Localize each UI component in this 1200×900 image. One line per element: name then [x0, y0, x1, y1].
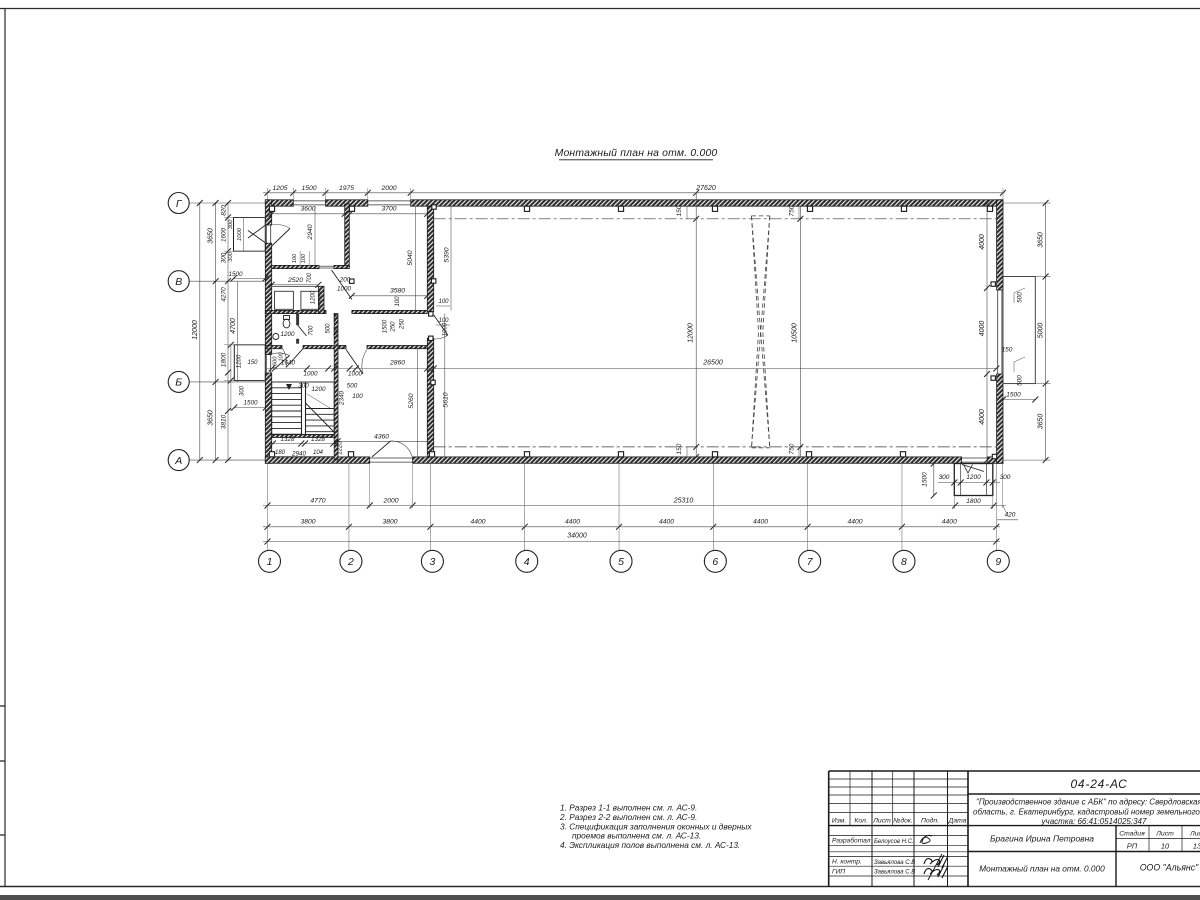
svg-text:4400: 4400 — [753, 518, 768, 525]
svg-text:300: 300 — [334, 326, 340, 336]
svg-text:1328: 1328 — [280, 436, 295, 443]
svg-text:100: 100 — [334, 312, 340, 322]
svg-text:4700: 4700 — [230, 318, 237, 334]
svg-text:300: 300 — [240, 385, 246, 396]
svg-text:Б: Б — [175, 377, 182, 389]
svg-text:1: 1 — [267, 556, 273, 568]
svg-text:4000: 4000 — [979, 321, 986, 337]
svg-text:Кол.: Кол. — [854, 818, 867, 825]
svg-text:04-24-АС: 04-24-АС — [1070, 777, 1127, 791]
svg-text:Разработал: Разработал — [832, 837, 871, 845]
svg-text:Завьялова С.В: Завьялова С.В — [874, 870, 915, 876]
svg-text:150: 150 — [676, 443, 683, 454]
svg-text:12000: 12000 — [192, 320, 199, 340]
svg-text:Дата: Дата — [948, 818, 967, 825]
svg-text:13: 13 — [1193, 841, 1200, 850]
svg-text:5000: 5000 — [1038, 323, 1045, 339]
svg-text:10500: 10500 — [792, 323, 799, 343]
svg-text:150: 150 — [247, 360, 258, 366]
svg-text:300: 300 — [228, 219, 234, 229]
svg-text:4400: 4400 — [847, 518, 862, 525]
svg-text:2940: 2940 — [307, 224, 314, 240]
svg-text:200: 200 — [339, 277, 351, 284]
svg-text:В: В — [175, 276, 182, 288]
svg-text:Брагина Ирина Петровна: Брагина Ирина Петровна — [990, 834, 1094, 844]
svg-text:3700: 3700 — [381, 206, 396, 213]
svg-text:2000: 2000 — [382, 498, 398, 505]
svg-text:1220: 1220 — [338, 441, 344, 455]
svg-text:1500: 1500 — [301, 185, 316, 192]
svg-text:25310: 25310 — [673, 498, 694, 505]
svg-text:750: 750 — [789, 443, 796, 454]
svg-text:2340: 2340 — [339, 391, 346, 407]
svg-text:250: 250 — [400, 318, 406, 330]
svg-text:1328: 1328 — [311, 436, 326, 443]
svg-text:26500: 26500 — [702, 360, 723, 367]
svg-text:1205: 1205 — [272, 185, 287, 192]
svg-text:500: 500 — [1017, 375, 1024, 386]
svg-text:750: 750 — [789, 205, 796, 216]
svg-text:700: 700 — [309, 325, 315, 336]
svg-text:3650: 3650 — [208, 410, 215, 426]
svg-text:4360: 4360 — [374, 433, 389, 440]
svg-text:250: 250 — [391, 321, 397, 333]
svg-text:100: 100 — [352, 393, 363, 400]
svg-text:1500: 1500 — [383, 319, 389, 333]
svg-text:область, г. Екатеринбург, када: область, г. Екатеринбург, кадастровый но… — [973, 808, 1200, 817]
svg-text:5390: 5390 — [444, 247, 451, 262]
svg-text:Лист: Лист — [1155, 830, 1174, 837]
svg-text:1000: 1000 — [337, 286, 352, 293]
svg-text:4. Экспликация полов выполн: 4. Экспликация полов выполнена см. л. АС… — [560, 840, 740, 850]
svg-text:150: 150 — [1002, 347, 1013, 354]
svg-text:Монтажный план на отм. 0.000: Монтажный план на отм. 0.000 — [979, 864, 1105, 874]
svg-text:Лис: Лис — [1189, 830, 1200, 837]
svg-text:100: 100 — [438, 318, 449, 324]
svg-text:300: 300 — [1000, 474, 1011, 481]
svg-text:3580: 3580 — [390, 287, 405, 294]
svg-text:1200: 1200 — [966, 474, 981, 481]
svg-text:2860: 2860 — [389, 359, 405, 366]
svg-text:300: 300 — [228, 251, 234, 261]
svg-text:1975: 1975 — [339, 185, 354, 192]
svg-text:2: 2 — [347, 556, 354, 568]
svg-text:Лист: Лист — [872, 818, 891, 825]
svg-text:9: 9 — [995, 556, 1001, 568]
svg-text:10: 10 — [1161, 841, 1170, 850]
svg-text:12000: 12000 — [688, 323, 695, 343]
svg-text:300: 300 — [298, 383, 309, 390]
svg-text:700: 700 — [307, 272, 313, 283]
svg-text:Изм.: Изм. — [832, 818, 847, 825]
svg-text:РП: РП — [1127, 841, 1138, 850]
svg-text:3: 3 — [429, 556, 435, 568]
svg-text:100: 100 — [438, 299, 449, 305]
svg-text:3600: 3600 — [300, 206, 315, 213]
svg-text:4000: 4000 — [979, 234, 986, 250]
svg-text:ГИП: ГИП — [832, 868, 845, 875]
svg-text:Стадия: Стадия — [1119, 829, 1145, 837]
svg-text:4400: 4400 — [470, 518, 485, 525]
svg-text:3650: 3650 — [208, 228, 215, 244]
svg-text:3800: 3800 — [300, 518, 315, 525]
svg-text:1500: 1500 — [922, 472, 929, 487]
svg-text:3650: 3650 — [1038, 232, 1045, 248]
svg-text:1000: 1000 — [237, 227, 243, 241]
svg-text:1000: 1000 — [303, 370, 318, 377]
svg-text:4400: 4400 — [659, 518, 674, 525]
svg-text:ООО "Альянс": ООО "Альянс" — [1140, 863, 1199, 873]
svg-text:1200: 1200 — [237, 354, 243, 368]
svg-text:5: 5 — [618, 556, 624, 568]
svg-text:Завьялова С.В: Завьялова С.В — [874, 860, 915, 866]
svg-text:4400: 4400 — [942, 518, 957, 525]
svg-text:100: 100 — [292, 253, 298, 263]
svg-text:1000: 1000 — [348, 370, 363, 377]
svg-text:1500: 1500 — [243, 400, 258, 407]
svg-text:Белоусов Н.С.: Белоусов Н.С. — [874, 839, 914, 845]
svg-text:Н. контр.: Н. контр. — [832, 859, 862, 866]
svg-text:5040: 5040 — [407, 250, 414, 265]
svg-text:Подп.: Подп. — [921, 817, 939, 825]
svg-text:1800: 1800 — [221, 352, 228, 367]
svg-text:3650: 3650 — [1038, 414, 1045, 430]
svg-text:300: 300 — [221, 252, 228, 263]
svg-text:4270: 4270 — [221, 287, 228, 302]
svg-text:4: 4 — [524, 556, 530, 568]
svg-text:5610: 5610 — [443, 392, 450, 407]
svg-text:180: 180 — [275, 450, 286, 456]
svg-text:27620: 27620 — [695, 185, 716, 192]
svg-text:№док.: №док. — [893, 817, 913, 825]
svg-text:1200: 1200 — [280, 331, 295, 338]
svg-text:8: 8 — [901, 556, 907, 568]
svg-text:100: 100 — [395, 296, 401, 307]
svg-text:100: 100 — [279, 353, 285, 362]
svg-text:150: 150 — [676, 205, 683, 216]
svg-text:5260: 5260 — [408, 393, 415, 408]
svg-text:1200: 1200 — [311, 386, 326, 393]
svg-text:104: 104 — [313, 450, 324, 456]
svg-text:1000: 1000 — [443, 322, 449, 336]
svg-text:500: 500 — [326, 323, 332, 334]
svg-text:Монтажный план на отм. 0.0: Монтажный план на отм. 0.000 — [555, 148, 718, 159]
svg-text:2940: 2940 — [291, 451, 307, 458]
svg-text:34000: 34000 — [567, 533, 587, 540]
svg-text:4770: 4770 — [310, 498, 325, 505]
svg-text:820: 820 — [221, 205, 228, 216]
svg-text:300: 300 — [939, 474, 950, 481]
svg-text:500: 500 — [1017, 292, 1024, 303]
svg-text:3800: 3800 — [382, 518, 397, 525]
svg-text:3810: 3810 — [221, 414, 228, 429]
svg-text:1800: 1800 — [966, 498, 981, 505]
svg-text:4000: 4000 — [979, 409, 986, 425]
svg-text:1500: 1500 — [1006, 392, 1021, 399]
svg-text:"Производственное здание с АБК: "Производственное здание с АБК" по адрес… — [976, 798, 1200, 807]
svg-text:2520: 2520 — [287, 277, 303, 284]
svg-text:2000: 2000 — [380, 185, 396, 192]
svg-text:4400: 4400 — [565, 518, 580, 525]
svg-text:100: 100 — [301, 253, 307, 263]
svg-text:500: 500 — [347, 383, 358, 390]
svg-text:6: 6 — [712, 556, 718, 568]
svg-text:А: А — [174, 455, 182, 467]
svg-text:участка: 66:41:0514025:347: участка: 66:41:0514025:347 — [1041, 817, 1147, 826]
svg-text:1200: 1200 — [311, 290, 317, 304]
svg-text:1600: 1600 — [221, 228, 228, 243]
